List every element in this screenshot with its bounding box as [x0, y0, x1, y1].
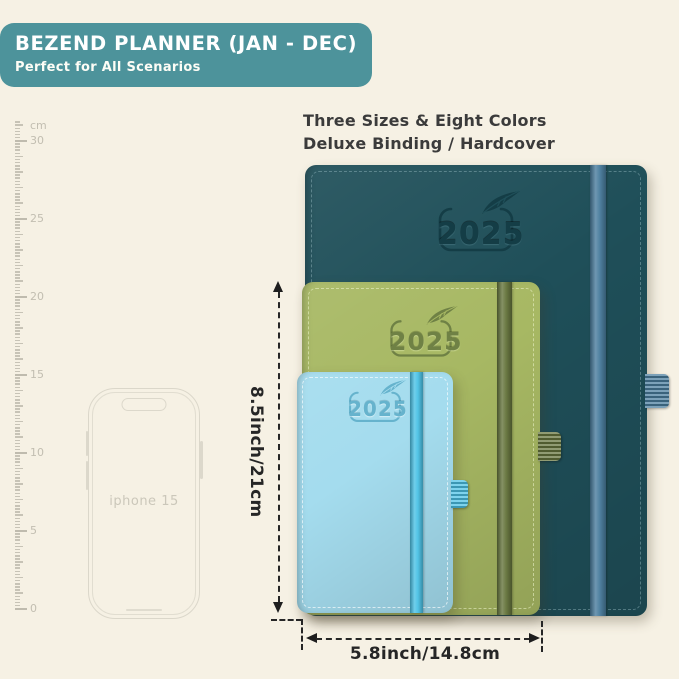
ruler-tick [15, 452, 27, 454]
phone-side-button [86, 461, 89, 490]
ruler-tick [15, 430, 20, 432]
ruler-tick [15, 443, 20, 445]
ruler-tick [15, 255, 20, 257]
year-text: 2025 [389, 327, 453, 356]
ruler-tick [15, 602, 20, 604]
ruler-tick [15, 577, 23, 579]
ruler-tick [15, 558, 20, 560]
ruler-tick [15, 309, 20, 311]
ruler-tick [15, 218, 27, 220]
height-dimension-line [278, 292, 280, 602]
ruler-tick [15, 455, 20, 457]
ruler-tick [15, 530, 27, 532]
ruler-tick [15, 324, 20, 326]
pen-loop [451, 480, 468, 508]
ruler-tick [15, 383, 20, 385]
ruler-tick [15, 227, 20, 229]
ruler-tick [15, 134, 20, 136]
ruler-tick [15, 249, 23, 251]
ruler-tick [15, 533, 20, 535]
ruler-tick [15, 446, 20, 448]
ruler-tick [15, 171, 23, 173]
ruler-tick [15, 521, 20, 523]
ruler-tick [15, 262, 20, 264]
arrow-down-icon [273, 602, 283, 613]
ruler-tick [15, 196, 20, 198]
ruler-tick [15, 131, 20, 133]
ruler-tick [15, 368, 20, 370]
ruler-tick [15, 327, 23, 329]
ruler-label: 10 [30, 447, 44, 458]
ruler-tick [15, 546, 23, 548]
ruler-tick [15, 209, 20, 211]
corner-guide-horizontal [271, 619, 302, 621]
height-dimension-label: 8.5inch/21cm [246, 386, 266, 516]
ruler-tick [15, 290, 20, 292]
ruler-tick [15, 153, 20, 155]
ruler-tick [15, 483, 23, 485]
ruler-tick [15, 387, 20, 389]
ruler-tick [15, 277, 20, 279]
arrow-right-icon [529, 633, 540, 643]
ruler-tick [15, 143, 20, 145]
ruler-tick [15, 561, 23, 563]
ruler-tick [15, 146, 20, 148]
ruler-tick [15, 502, 20, 504]
pen-loop [538, 432, 561, 461]
ruler-tick [15, 458, 20, 460]
ruler-tick [15, 508, 20, 510]
ruler-tick [15, 181, 20, 183]
ruler-tick [15, 140, 27, 142]
ruler-tick [15, 399, 20, 401]
year-logo: 2025 [389, 318, 453, 358]
ruler-tick [15, 302, 20, 304]
ruler-tick [15, 589, 20, 591]
ruler-tick [15, 355, 20, 357]
ruler-tick [15, 265, 23, 267]
ruler-tick [15, 552, 20, 554]
product-image: BEZEND PLANNER (JAN - DEC) Perfect for A… [0, 0, 679, 679]
ruler-tick [15, 149, 20, 151]
ruler-tick [15, 193, 20, 195]
ruler-tick [15, 168, 20, 170]
ruler-tick [15, 374, 27, 376]
width-dimension-line [316, 638, 530, 640]
ruler-tick [15, 408, 20, 410]
ruler-tick [15, 489, 20, 491]
ruler-tick [15, 418, 20, 420]
corner-guide-vertical [301, 619, 303, 650]
ruler-tick [15, 465, 20, 467]
ruler-tick [15, 280, 23, 282]
ruler-tick [15, 380, 20, 382]
ruler-tick [15, 496, 20, 498]
ruler-tick [15, 187, 23, 189]
ruler-tick [15, 424, 20, 426]
pen-loop [645, 374, 669, 408]
tagline-line2: Deluxe Binding / Hardcover [303, 133, 555, 156]
ruler-label: 15 [30, 369, 44, 380]
ruler-tick [15, 215, 20, 217]
ruler-tick [15, 330, 20, 332]
ruler-tick [15, 486, 20, 488]
ruler: cm 051015202530 [15, 118, 70, 623]
ruler-tick [15, 421, 23, 423]
ruler-tick [15, 405, 23, 407]
feather-icon [423, 304, 461, 326]
ruler-tick [15, 287, 20, 289]
year-logo: 2025 [437, 205, 515, 253]
ruler-tick [15, 124, 23, 126]
phone-side-button [86, 431, 89, 456]
ruler-tick [15, 390, 23, 392]
tagline: Three Sizes & Eight Colors Deluxe Bindin… [303, 110, 555, 155]
planner-small: 2025 [297, 372, 453, 613]
ruler-tick [15, 340, 20, 342]
feather-icon [377, 378, 408, 396]
ruler-tick [15, 583, 20, 585]
ruler-tick [15, 343, 23, 345]
ruler-tick [15, 411, 20, 413]
width-dimension-label: 5.8inch/14.8cm [345, 644, 505, 664]
ruler-tick [15, 274, 20, 276]
ruler-tick [15, 271, 20, 273]
ruler-tick [15, 243, 20, 245]
ruler-tick [15, 539, 20, 541]
ruler-tick [15, 321, 20, 323]
ruler-tick [15, 480, 20, 482]
ruler-tick [15, 592, 23, 594]
ruler-tick [15, 396, 20, 398]
elastic-band [410, 372, 423, 613]
ruler-tick [15, 393, 20, 395]
ruler-tick [15, 571, 20, 573]
ruler-tick [15, 527, 20, 529]
ruler-tick [15, 599, 20, 601]
ruler-tick [15, 315, 20, 317]
ruler-tick [15, 365, 20, 367]
ruler-tick [15, 402, 20, 404]
ruler-label: 25 [30, 213, 44, 224]
ruler-tick [15, 199, 20, 201]
ruler-tick [15, 259, 20, 261]
ruler-label: 5 [30, 525, 37, 536]
ruler-tick [15, 536, 20, 538]
brand-subtitle: Perfect for All Scenarios [15, 60, 372, 75]
ruler-tick [15, 608, 27, 610]
ruler-tick [15, 252, 20, 254]
ruler-tick [15, 165, 20, 167]
ruler-label: 0 [30, 603, 37, 614]
ruler-tick [15, 346, 20, 348]
phone-label: iphone 15 [89, 494, 199, 509]
ruler-tick [15, 371, 20, 373]
ruler-tick [15, 221, 20, 223]
tagline-line1: Three Sizes & Eight Colors [303, 110, 555, 133]
ruler-label: 20 [30, 291, 44, 302]
ruler-tick [15, 128, 20, 130]
ruler-unit-label: cm [30, 119, 47, 132]
ruler-tick [15, 477, 20, 479]
ruler-tick [15, 318, 20, 320]
elastic-band [590, 165, 606, 616]
year-logo: 2025 [348, 390, 402, 423]
ruler-tick [15, 433, 20, 435]
ruler-tick [15, 284, 20, 286]
ruler-tick [15, 514, 23, 516]
ruler-tick [15, 564, 20, 566]
ruler-tick [15, 296, 27, 298]
ruler-tick [15, 137, 20, 139]
ruler-tick [15, 184, 20, 186]
ruler-tick [15, 190, 20, 192]
ruler-tick [15, 299, 20, 301]
ruler-tick [15, 449, 20, 451]
ruler-tick [15, 337, 20, 339]
ruler-tick [15, 231, 20, 233]
ruler-tick [15, 427, 20, 429]
phone-dynamic-island [122, 398, 167, 411]
ruler-tick [15, 524, 20, 526]
ruler-tick [15, 574, 20, 576]
ruler-tick [15, 549, 20, 551]
ruler-tick [15, 580, 20, 582]
ruler-tick [15, 174, 20, 176]
ruler-tick [15, 237, 20, 239]
brand-title: BEZEND PLANNER (JAN - DEC) [15, 32, 372, 55]
ruler-tick [15, 471, 20, 473]
ruler-tick [15, 493, 20, 495]
ruler-tick [15, 499, 23, 501]
ruler-tick [15, 377, 20, 379]
phone-port-line [126, 609, 162, 611]
feather-icon [478, 189, 524, 215]
arrow-up-icon [273, 281, 283, 292]
phone-side-button [200, 441, 203, 479]
ruler-tick [15, 268, 20, 270]
ruler-tick [15, 293, 20, 295]
ruler-tick [15, 234, 23, 236]
ruler-tick [15, 586, 20, 588]
ruler-tick [15, 206, 20, 208]
ruler-tick [15, 121, 20, 123]
ruler-tick [15, 224, 20, 226]
ruler-tick [15, 567, 20, 569]
ruler-tick [15, 246, 20, 248]
ruler-tick [15, 333, 20, 335]
year-text: 2025 [437, 217, 515, 252]
ruler-tick [15, 474, 20, 476]
ruler-tick [15, 440, 20, 442]
right-guide-vertical [541, 621, 543, 652]
ruler-tick [15, 212, 20, 214]
ruler-label: 30 [30, 135, 44, 146]
ruler-tick [15, 468, 23, 470]
header-banner: BEZEND PLANNER (JAN - DEC) Perfect for A… [0, 23, 372, 87]
ruler-tick [15, 461, 20, 463]
ruler-tick [15, 305, 20, 307]
ruler-tick [15, 177, 20, 179]
elastic-band [497, 282, 512, 615]
ruler-tick [15, 162, 20, 164]
ruler-tick [15, 349, 20, 351]
ruler-tick [15, 605, 20, 607]
ruler-tick [15, 415, 20, 417]
ruler-tick [15, 159, 20, 161]
ruler-tick [15, 362, 20, 364]
ruler-tick [15, 596, 20, 598]
phone-outline: iphone 15 [88, 388, 200, 619]
ruler-tick [15, 202, 23, 204]
year-text: 2025 [348, 397, 402, 421]
ruler-tick [15, 156, 23, 158]
ruler-tick [15, 555, 20, 557]
ruler-tick [15, 240, 20, 242]
ruler-tick [15, 312, 23, 314]
ruler-tick [15, 518, 20, 520]
ruler-tick [15, 543, 20, 545]
ruler-tick [15, 505, 20, 507]
ruler-tick [15, 352, 20, 354]
ruler-tick [15, 358, 23, 360]
ruler-tick [15, 436, 23, 438]
ruler-tick [15, 511, 20, 513]
